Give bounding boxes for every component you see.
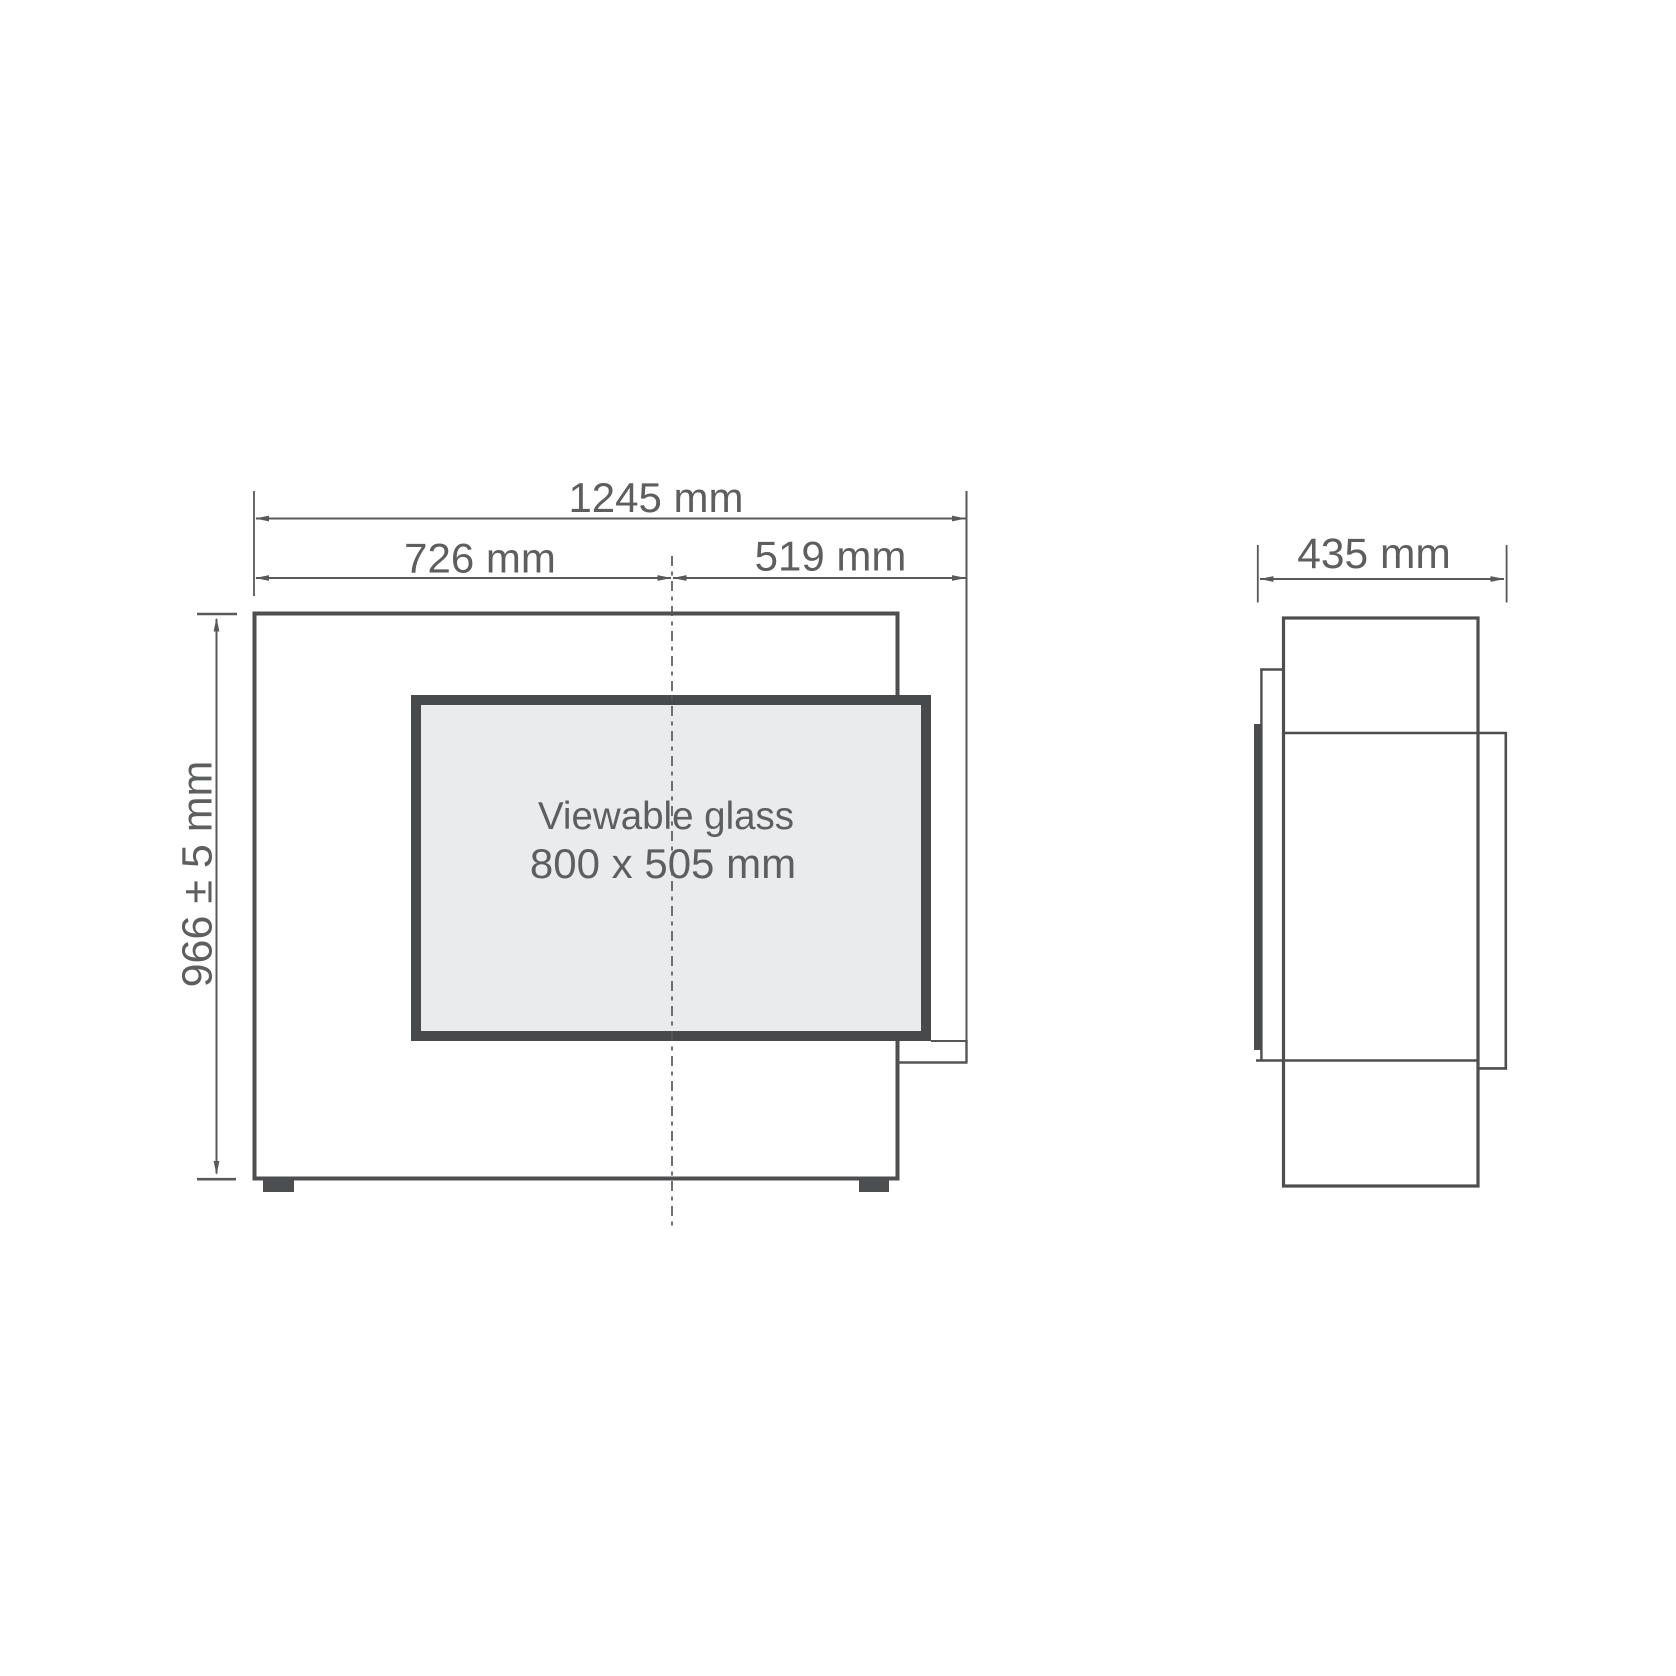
svg-text:435 mm: 435 mm bbox=[1297, 531, 1451, 578]
svg-text:1245 mm: 1245 mm bbox=[568, 474, 743, 521]
svg-text:Viewable glass: Viewable glass bbox=[538, 795, 794, 838]
svg-text:726 mm: 726 mm bbox=[404, 535, 556, 582]
svg-text:800 x 505 mm: 800 x 505 mm bbox=[530, 840, 796, 887]
svg-text:966 ± 5 mm: 966 ± 5 mm bbox=[174, 761, 222, 988]
svg-text:519 mm: 519 mm bbox=[755, 533, 907, 580]
